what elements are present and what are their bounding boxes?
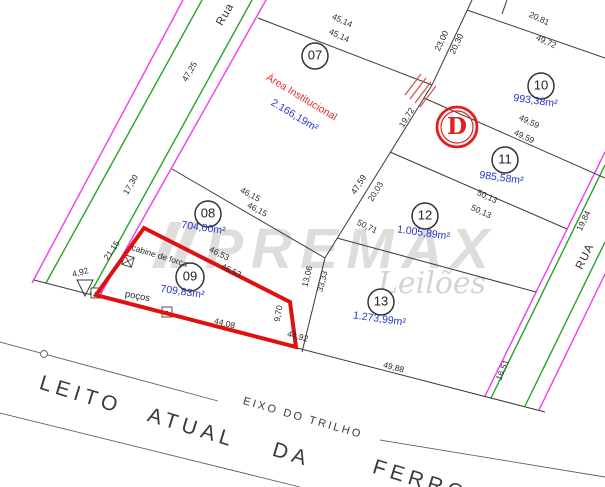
lot11-number: 11 <box>498 151 512 166</box>
rail-bed-word3: DA <box>270 438 314 471</box>
street-edge-line <box>46 0 202 283</box>
plat-drawing: PREMAX Leilões <box>0 0 605 487</box>
rail-axis-label: EIXO DO TRILHO <box>242 395 365 441</box>
red-hatch-marks <box>405 74 436 107</box>
marker-d-seal: D <box>437 107 477 147</box>
rail-node-circle <box>41 351 48 358</box>
measure-lot11-south1: 50,13 <box>476 187 500 205</box>
street-edge-line <box>32 0 183 283</box>
lot11-area: 985,58m² <box>479 169 525 187</box>
survey-plat-map: PREMAX Leilões <box>0 0 605 487</box>
measurement-labels: 45,14 45,14 19,72 23,00 20,30 20,81 49,7… <box>71 9 593 381</box>
street-edge-line <box>525 242 605 406</box>
marker-d-letter: D <box>447 113 467 140</box>
measure-lot12-nw2: 20,03 <box>366 180 386 204</box>
lot10-area: 993,38m² <box>513 92 559 110</box>
measure-lot09-east: 9,70 <box>272 304 285 322</box>
lot12-number: 12 <box>418 207 432 222</box>
railway-labels: EIXO DO TRILHO LEITO ATUAL DA FERROVIA <box>37 371 518 487</box>
measure-street-right-lower: 16,51 <box>494 358 511 382</box>
lot08-number: 08 <box>201 205 215 220</box>
measure-south-near-lot9: 44,92 <box>286 329 309 344</box>
measure-street-left-small: 4,92 <box>71 265 90 279</box>
measure-lot10-south1: 49,59 <box>518 112 542 130</box>
rail-bed-word4: FERROVIA <box>370 455 518 487</box>
lot09-number: 09 <box>183 268 197 283</box>
street-left-name: Rua <box>214 1 236 28</box>
street-edge-line <box>539 274 605 410</box>
measure-lot07-east: 19,72 <box>397 106 417 130</box>
lot13-area: 1.273,99m² <box>352 309 407 328</box>
measure-street-left-mid: 17,30 <box>121 173 140 197</box>
top-tick-line <box>502 0 507 14</box>
measure-street-right-upper: 19,84 <box>574 209 592 233</box>
lot10-number: 10 <box>534 77 548 92</box>
lot07-number: 07 <box>308 47 322 62</box>
measure-street-left-front: 47,25 <box>180 60 199 84</box>
measure-lot10-top1: 20,81 <box>528 9 552 27</box>
lot07-badge: 07 <box>302 43 328 69</box>
measure-lot10-top2: 49,72 <box>535 32 559 50</box>
measure-ne-lower: 20,30 <box>447 32 465 56</box>
measure-lot07-top2: 45,14 <box>328 26 352 44</box>
lot07-top-boundary <box>258 18 432 85</box>
rail-bed-word1: LEITO <box>37 371 125 418</box>
lot13-number: 13 <box>374 293 388 308</box>
lot11-badge: 11 <box>492 147 518 173</box>
rail-bed-word2: ATUAL <box>145 403 239 452</box>
watermark-script: Leilões <box>377 266 486 301</box>
